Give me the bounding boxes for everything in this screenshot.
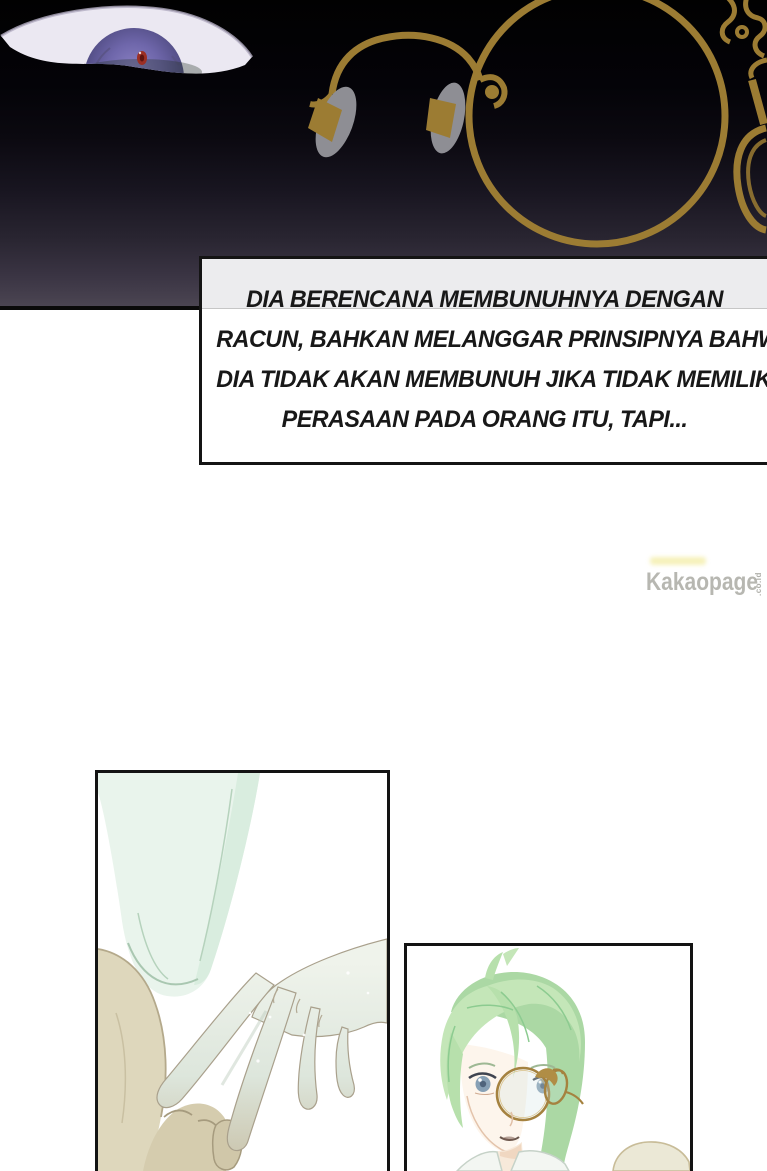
hands-illustration (98, 773, 387, 1171)
narration-text: DIA BERENCANA MEMBUNUHNYA DENGAN RACUN, … (210, 259, 758, 440)
panel-character (404, 943, 693, 1171)
character-illustration (407, 946, 690, 1171)
narration-line-4: PERASAAN PADA ORANG ITU, TAPI... (216, 400, 752, 440)
narration-line-1: DIA BERENCANA MEMBUNUHNYA DENGAN (216, 280, 752, 320)
watermark-highlight (650, 557, 706, 565)
watermark: Kakaopage .co.id (646, 568, 767, 597)
panel-hands (95, 770, 390, 1171)
webtoon-page: DIA BERENCANA MEMBUNUHNYA DENGAN RACUN, … (0, 0, 767, 1171)
narration-line-2: RACUN, BAHKAN MELANGGAR PRINSIPNYA BAHWA (216, 320, 752, 360)
watermark-text: Kakaopage (646, 568, 758, 597)
narration-box: DIA BERENCANA MEMBUNUHNYA DENGAN RACUN, … (199, 256, 767, 465)
narration-line-3: DIA TIDAK AKAN MEMBUNUH JIKA TIDAK MEMIL… (216, 360, 752, 400)
watermark-domain-suffix: .co.id (754, 572, 763, 596)
shoulder-blob (613, 1142, 690, 1171)
